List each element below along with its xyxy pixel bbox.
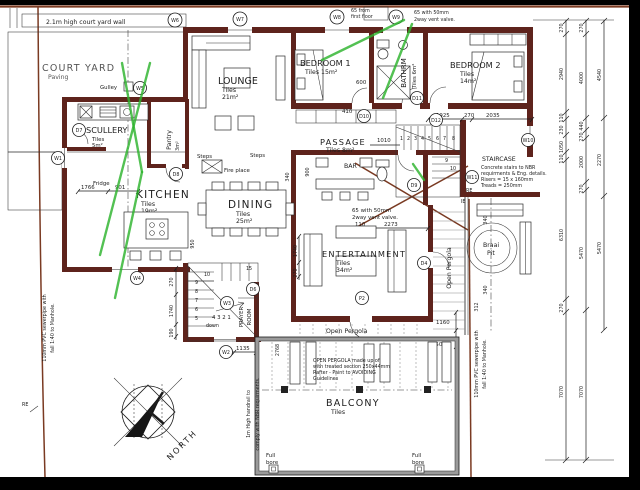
bar-wc: BAR 900 [305, 158, 389, 200]
dim-c1: 270 [559, 23, 565, 32]
ent-area: 34m² [336, 267, 353, 274]
wc-cistern [376, 160, 389, 167]
gulley-label: Gulley [100, 85, 118, 91]
dim-ent-left-270: 270 [293, 268, 299, 277]
marker-w11: W11 [467, 175, 478, 181]
bar-stool [322, 192, 332, 200]
pergola-bottom: Open Pergola [300, 324, 417, 336]
full-bore-left: Full [266, 453, 275, 459]
marker-w4: W4 [133, 276, 141, 282]
dim-kitchen-1: 1766 [81, 185, 95, 191]
vent-note-mid: 65 with 50mm [352, 208, 391, 214]
dim-c3: 2270 [597, 154, 603, 166]
stair-num: 15 [246, 266, 252, 272]
marker-d4: D4 [421, 261, 428, 267]
stove [146, 219, 168, 239]
pergola-post [290, 342, 300, 384]
stair-num: 9 [445, 158, 448, 164]
stair-num: 4 [421, 136, 424, 142]
entertainment: ENTERTAINMENT Tiles 34m² 1740 270 [293, 226, 406, 292]
room-label-scullery: SCULLERY [86, 125, 128, 135]
lounge: LOUNGE Tiles 21m² [192, 36, 285, 130]
court-yard-finish: Paving [48, 74, 69, 81]
scullery-area: 5m² [92, 142, 103, 149]
fireplace-steps: Steps Steps Fire place 340 [197, 153, 291, 182]
toilet-bowl [378, 49, 388, 59]
stair-num: 7 [443, 136, 446, 142]
first-floor-note: 65 from [351, 8, 370, 14]
left-boundary-line [38, 7, 45, 477]
braai-area: Braai Pit 340 340 312 RE IE [461, 188, 531, 332]
dim-c1: 230 [559, 125, 565, 134]
pergola-post [380, 344, 390, 382]
north-arrow: NORTH [114, 378, 199, 462]
chair [266, 228, 278, 236]
full-bore-right: Full [412, 453, 421, 459]
chair [212, 182, 224, 190]
floor-plan-canvas: 2.1m high court yard wall COURT YARD Pav… [0, 0, 640, 490]
dim-c1: 110 [559, 154, 565, 163]
room-label-prayer-1: PRAYER [239, 307, 245, 328]
dim-c3: 4540 [597, 69, 603, 81]
chair [248, 182, 260, 190]
kitchen: KITCHEN Tiles 19m² Fridge 1766 901 950 [76, 181, 196, 260]
staircase-note-line: Concrete stairs to NBR [481, 165, 536, 171]
stair-num: 2 [407, 136, 410, 142]
down-label: down [206, 323, 219, 329]
stair-num: 5 [195, 316, 198, 322]
pergola-post [428, 342, 437, 382]
tv-cabinet [276, 56, 285, 100]
stair-num: 10 [204, 272, 210, 278]
pergola-post [442, 342, 451, 382]
lounge-area: 21m² [222, 94, 239, 101]
first-floor-note: first floor [351, 14, 373, 20]
room-label-pantry: Pantry [166, 130, 173, 150]
vent-note-top: 65 with 50mm [414, 10, 449, 16]
staircase-note-line: requirments & Eng. details. [481, 171, 547, 177]
staircase-note-title: STAIRCASE [482, 156, 516, 163]
dim-c1: 6310 [559, 229, 565, 241]
sewer-note-right-1: 110mm PVC sewerpipe with [474, 330, 480, 397]
stair-num: 3 [414, 136, 417, 142]
dim-ent-left-1740: 1740 [293, 245, 299, 257]
dim-c1: 110 [559, 113, 565, 122]
balcony-finish: Tiles [330, 409, 345, 416]
sewer-note-left-2: fall 1:40 to Manhole. [50, 303, 56, 352]
dim-c2: 7070 [579, 386, 585, 398]
room-label-lounge: LOUNGE [218, 76, 258, 87]
room-label-bar: BAR [344, 163, 357, 170]
pergola-note: Guidelines [313, 376, 339, 382]
stair-num: 6 [436, 136, 439, 142]
chair [230, 228, 242, 236]
dim-braai-1: 340 [483, 215, 489, 224]
room-label-bathroom: BATHRM [400, 58, 408, 88]
lounge-finish: Tiles [221, 87, 236, 94]
passage-finish: Tiles 8m² [325, 147, 355, 154]
armchair [215, 116, 231, 130]
stair-num: 10 [450, 166, 456, 172]
bar-stool [358, 192, 368, 200]
armchair [238, 116, 254, 130]
dim-c1: 1050 [559, 141, 565, 153]
stair-num: 8 [452, 136, 455, 142]
room-label-kitchen: KITCHEN [136, 189, 190, 201]
marker-w2: W2 [222, 350, 230, 356]
dim-c2: 2000 [579, 156, 585, 168]
marker-w7: W7 [236, 17, 244, 23]
dim-island: 950 [190, 239, 196, 248]
pergola-right-label: Open Pergola [446, 247, 453, 289]
dim-bedroom2-2035: 2035 [486, 113, 500, 119]
dimension-chains: 270 2940 110 230 1050 110 6310 270 7070 … [533, 18, 614, 463]
marker-d6: D6 [250, 287, 257, 293]
room-label-balcony: BALCONY [326, 398, 380, 409]
marker-d9: D9 [411, 183, 418, 189]
bedroom-2: BEDROOM 2 Tiles 14m² [450, 34, 526, 100]
north-label: NORTH [165, 428, 200, 463]
dim-stairleft-1740: 1740 [169, 305, 175, 317]
handrail-note-2: comply with NBR requirments. [255, 377, 261, 450]
right-boundary-line [469, 199, 471, 477]
stair-num: 9 [195, 280, 198, 286]
dim-bedroom1: 410 [342, 109, 353, 115]
dim-stairleft-270: 270 [169, 277, 175, 286]
dim-c2: 5470 [579, 247, 585, 259]
chair [198, 203, 206, 215]
steps-label: Steps [197, 154, 212, 160]
kitchen-finish: Tiles [140, 201, 155, 208]
stair-num: 7 [195, 298, 198, 304]
marker-w8: W8 [333, 15, 341, 21]
dim-fireplace: 340 [285, 172, 291, 181]
re-label-left: RE [22, 402, 28, 408]
dim-bar: 900 [305, 167, 311, 176]
marker-w10: W10 [523, 138, 534, 144]
marker-d7: D7 [76, 128, 83, 134]
stair-num: 5 [428, 136, 431, 142]
seat [336, 226, 376, 238]
wc-pan [377, 167, 387, 181]
dim-ent-2273: 2273 [384, 222, 398, 228]
pergola-note: with treated section 250x44mm [313, 364, 390, 370]
room-label-entertainment: ENTERTAINMENT [322, 249, 406, 259]
sofa [388, 230, 406, 292]
sofa [304, 234, 322, 286]
dim-c2: 270 [579, 23, 585, 32]
bedroom-1: BEDROOM 1 Tiles 15m² [295, 50, 351, 100]
dim-c2: 270 [579, 184, 585, 193]
passage: PASSAGE Tiles 8m² 1010 [296, 110, 400, 154]
full-bore-outlet [415, 465, 424, 473]
court-wall-note: 2.1m high court yard wall [46, 19, 126, 26]
dim-edge-312: 312 [474, 302, 480, 311]
marker-d11: D11 [412, 96, 422, 102]
chair [230, 182, 242, 190]
balcony: OPEN PERGOLA made up of with treated sec… [246, 337, 459, 475]
stool [170, 251, 181, 260]
staircase-note-line: Risers = 15 x 160mm [481, 177, 533, 183]
chair [286, 203, 294, 215]
sink [100, 107, 116, 117]
bar-counter [316, 179, 374, 189]
bedroom2-area: 14m² [460, 78, 477, 85]
staircase-note-line: Treads = 250mm [480, 183, 522, 189]
marker-w3: W3 [223, 301, 231, 307]
dim-passage: 1010 [377, 138, 391, 144]
dim-c2: 440 [579, 121, 585, 130]
sewer-note-left-1: 110mm PVC sewerpipe with [42, 294, 48, 361]
pantry-area: 3m² [175, 141, 181, 151]
room-label-dining: DINING [228, 199, 273, 211]
pergola-bottom-label: Open Pergola [326, 328, 368, 335]
stair-num: 1 [400, 136, 403, 142]
chair [212, 228, 224, 236]
staircase-note: STAIRCASE Concrete stairs to NBR requirm… [480, 156, 547, 189]
room-label-passage: PASSAGE [320, 137, 366, 147]
dim-c1: 7070 [559, 386, 565, 398]
stair-row: 4 3 2 1 [212, 315, 231, 321]
dim-c2: 4000 [579, 72, 585, 84]
room-label-bedroom2: BEDROOM 2 [450, 60, 501, 70]
bathroom-finish: Tiles 6m² [411, 64, 418, 90]
dim-c1: 2940 [559, 68, 565, 80]
ent-finish: Tiles [335, 260, 350, 267]
marker-d10: D10 [359, 114, 369, 120]
floor-plan-page: 2.1m high court yard wall COURT YARD Pav… [0, 0, 640, 490]
dim-balcony-2768: 2768 [275, 344, 281, 356]
stair-num: 6 [195, 307, 198, 313]
staircase-lower: 10 9 8 7 6 5 15 4 3 2 1 down PRAYER ROOM… [169, 263, 258, 355]
dining-finish: Tiles [235, 211, 250, 218]
toilet [377, 40, 389, 48]
dining-area: 25m² [236, 218, 253, 225]
pergola-note: Rafter - Paint to AVOIDING [313, 370, 376, 376]
chair [248, 228, 260, 236]
room-label-prayer-2: ROOM [247, 308, 253, 325]
dim-c1: 270 [559, 303, 565, 312]
pergola-note: OPEN PERGOLA made up of [313, 358, 380, 364]
dim-pergola-1160: 1160 [436, 320, 450, 326]
fireplace-label: Fire place [224, 168, 251, 174]
handrail-note-1: 1m High handrail to [246, 390, 252, 438]
ie-label-right: IE [461, 199, 465, 205]
room-label-court-yard: COURT YARD [42, 63, 115, 74]
dim-c3: 5470 [597, 242, 603, 254]
bedroom1-finish: Tiles 15m² [304, 69, 338, 76]
dim-bedroom2-270: 270 [464, 113, 475, 119]
bedroom2-finish: Tiles [459, 71, 474, 78]
vent-note-mid: 2way vent valve. [352, 215, 398, 221]
marker-w6: W6 [171, 18, 179, 24]
fridge-label: Fridge [93, 181, 110, 187]
dim-braai-2: 340 [483, 285, 489, 294]
full-bore-outlet [269, 465, 278, 473]
dim-stairleft-190: 190 [169, 328, 175, 337]
stool [150, 251, 161, 260]
dining: DINING Tiles 25m² [198, 182, 294, 236]
marker-p2: P2 [359, 296, 365, 302]
dim-prayer: 1135 [236, 346, 250, 352]
marker-d12: D12 [431, 118, 441, 124]
chair [266, 182, 278, 190]
marker-d8: D8 [173, 172, 180, 178]
bar-stool [340, 192, 350, 200]
marker-w9: W9 [392, 15, 400, 21]
dim-c2: 270 [579, 132, 585, 141]
steps-label: Steps [250, 153, 265, 159]
stool [130, 251, 141, 260]
dim-bathroom: 600 [356, 80, 367, 86]
stair-num: 8 [195, 289, 198, 295]
marker-w1: W1 [54, 156, 62, 162]
vent-note-top: 2way vent valve. [414, 17, 455, 23]
sewer-note-right-2: fall 1:40 to Manhole. [482, 339, 488, 388]
re-label-right: RE [466, 188, 472, 194]
